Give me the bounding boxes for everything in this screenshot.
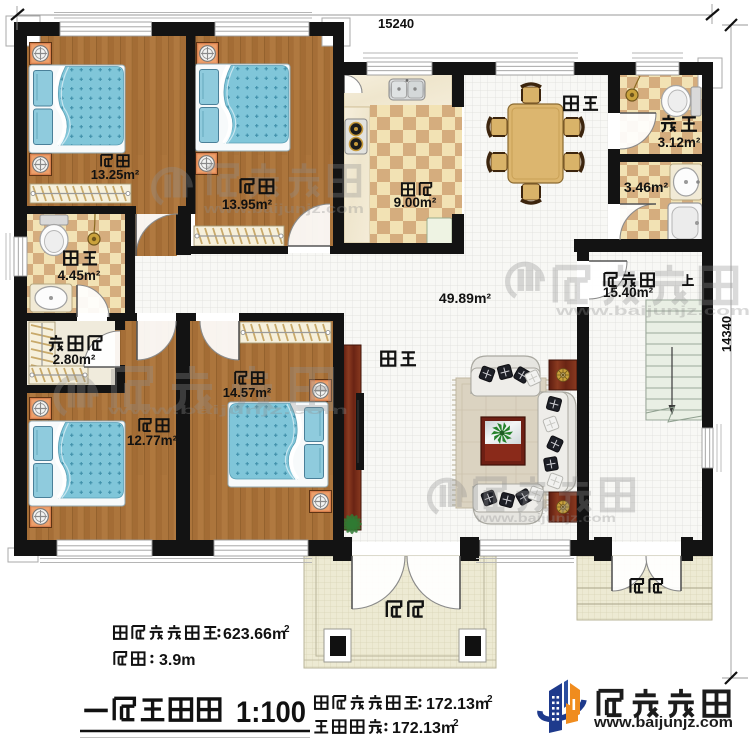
- svg-text:14.57m²: 14.57m²: [223, 385, 272, 400]
- svg-text:49.89m²: 49.89m²: [439, 290, 491, 306]
- svg-text:www.baijunjz.com: www.baijunjz.com: [554, 303, 750, 318]
- svg-text:623.66m: 623.66m: [223, 626, 286, 643]
- svg-text:www.baijunjz.com: www.baijunjz.com: [106, 403, 348, 417]
- svg-text:13.95m²: 13.95m²: [222, 197, 273, 212]
- svg-text:3.12m²: 3.12m²: [658, 135, 701, 150]
- svg-text:172.13m: 172.13m: [426, 696, 489, 713]
- svg-text:9.00m²: 9.00m²: [394, 195, 437, 210]
- svg-text:12.77m²: 12.77m²: [127, 433, 178, 448]
- svg-text:14340: 14340: [719, 316, 734, 352]
- svg-text:13.25m²: 13.25m²: [91, 167, 140, 182]
- svg-text:2: 2: [453, 718, 459, 729]
- svg-text:2: 2: [284, 624, 290, 635]
- svg-text:www.baijunjz.com: www.baijunjz.com: [475, 511, 616, 525]
- svg-text:2.80m²: 2.80m²: [53, 352, 96, 367]
- svg-text:1:100: 1:100: [236, 696, 306, 729]
- svg-text:15.40m²: 15.40m²: [603, 285, 654, 300]
- svg-text:15240: 15240: [378, 16, 414, 31]
- svg-text:2: 2: [487, 694, 493, 705]
- svg-text:3.9m: 3.9m: [159, 652, 195, 669]
- svg-text:3.46m²: 3.46m²: [624, 179, 669, 195]
- svg-text:4.45m²: 4.45m²: [58, 268, 101, 283]
- svg-text:172.13m: 172.13m: [392, 720, 455, 737]
- svg-text:www.baijunjz.com: www.baijunjz.com: [593, 715, 733, 731]
